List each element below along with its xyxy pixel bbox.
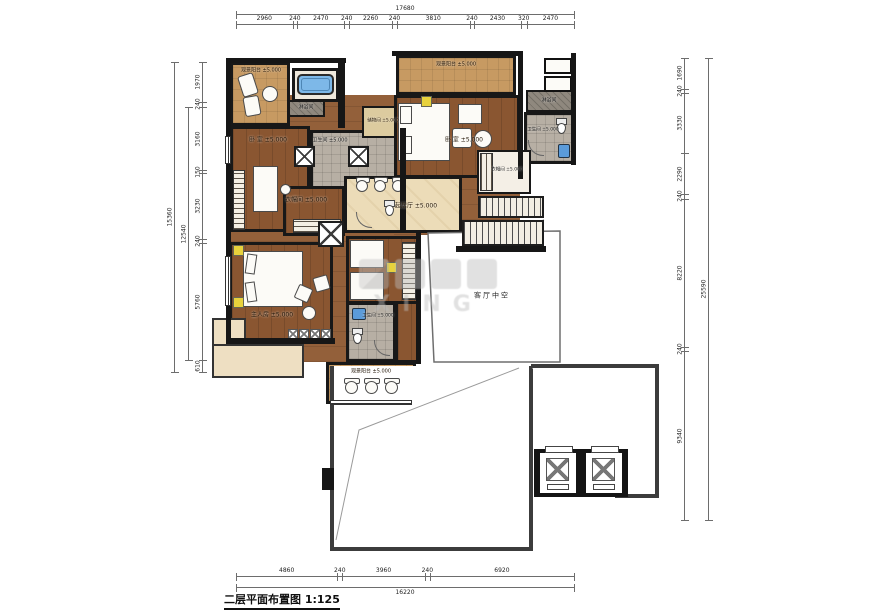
staircase-lower — [462, 220, 544, 246]
drawing-title: 二层平面布置图 1:125 — [224, 591, 340, 610]
balcony-chair — [385, 381, 398, 394]
dim-left-inner-total: 12540 — [188, 107, 189, 360]
room-label: 卧 室 ±5.000 — [445, 137, 483, 144]
room-label: 观景阳台 ±5.000 — [351, 369, 391, 376]
elevator-door — [593, 484, 615, 490]
elevator-shaft — [540, 453, 576, 493]
wall — [518, 51, 523, 97]
chair — [280, 184, 291, 195]
room-label: 衣帽间 ±5.000 — [285, 197, 327, 204]
elevator-opening — [545, 446, 573, 453]
room-label: 卫生间 ±5.000 — [362, 313, 394, 320]
room-label: 起居厅 ±5.000 — [395, 203, 437, 210]
wall — [400, 128, 406, 232]
room-label: 卫生间 ±5.000 — [527, 127, 559, 134]
elevator-door — [547, 484, 569, 490]
elevator-car — [546, 458, 569, 481]
sink — [558, 144, 570, 158]
dim-left-segments: 1970 240 3160 150 3230 240 5760 610 — [202, 62, 203, 372]
room-label: 观景阳台 ±5.000 — [241, 68, 281, 75]
room-label: 客厅中空 — [474, 293, 510, 300]
bar-stool — [356, 180, 368, 192]
dim-right-segments: 1690 240 3330 2290 240 8220 240 9340 — [684, 58, 685, 520]
balcony-chair — [345, 381, 358, 394]
bar-stool — [374, 180, 386, 192]
round-table — [262, 86, 278, 102]
round-table — [302, 306, 316, 320]
duct-shaft — [294, 146, 315, 167]
room-label: 卫生间 ±5.000 — [312, 138, 347, 145]
window — [225, 136, 231, 164]
dim-right-total: 25590 — [708, 58, 709, 520]
room-label: 衣帽间 ±5.000 — [491, 167, 523, 174]
window — [225, 256, 231, 306]
nightstand — [421, 96, 432, 107]
room-label: 主人房 ±5.000 — [251, 312, 293, 319]
dim-bottom-total: 16220 — [236, 587, 574, 588]
elevator-shaft — [586, 453, 622, 493]
room-label: 储物间 ±5.000 — [367, 118, 399, 125]
room-label: 观景阳台 ±5.000 — [436, 62, 476, 69]
wall — [392, 51, 522, 56]
elevator-car — [592, 458, 615, 481]
duct-shaft — [348, 146, 369, 167]
balcony-chair — [365, 381, 378, 394]
desk — [253, 166, 278, 212]
terrace-left — [212, 344, 304, 378]
dim-bottom-segments: 4860 240 3960 240 6920 — [236, 576, 574, 577]
wall — [571, 53, 576, 165]
wall — [228, 338, 335, 344]
wardrobe — [402, 242, 416, 300]
pillow — [400, 106, 412, 124]
window — [330, 400, 412, 405]
duct-shaft — [318, 221, 344, 247]
floor-plan-sheet: 观景阳台 ±5.000 淋浴间 卧 室 ±5.000 卫生间 ±5.000 储物… — [0, 0, 878, 614]
wall — [416, 232, 421, 364]
dim-top-segments: 2960 240 2470 240 2260 240 3810 240 2430… — [236, 24, 574, 25]
bathtub — [297, 74, 334, 95]
ac-platform — [544, 76, 572, 92]
room-label: 卧 室 ±5.000 — [249, 137, 287, 144]
nightstand — [233, 245, 244, 256]
lounge-chair — [242, 95, 261, 117]
staircase-upper — [478, 196, 544, 218]
wall — [456, 246, 546, 252]
wall — [226, 58, 346, 63]
toilet — [384, 200, 395, 216]
toilet — [352, 328, 363, 344]
wardrobe — [233, 170, 245, 230]
sofa — [458, 104, 482, 124]
wall — [338, 62, 345, 128]
nightstand — [386, 262, 397, 273]
elevator-opening — [591, 446, 619, 453]
bed — [350, 240, 384, 268]
ac-platform — [544, 58, 572, 74]
room-label: 淋浴间 — [541, 98, 556, 105]
wall-notch — [322, 468, 334, 490]
bed — [350, 272, 384, 300]
room-label: 淋浴间 — [298, 105, 313, 112]
dim-left-outer-total: 15360 — [174, 62, 175, 372]
nightstand — [233, 297, 244, 308]
